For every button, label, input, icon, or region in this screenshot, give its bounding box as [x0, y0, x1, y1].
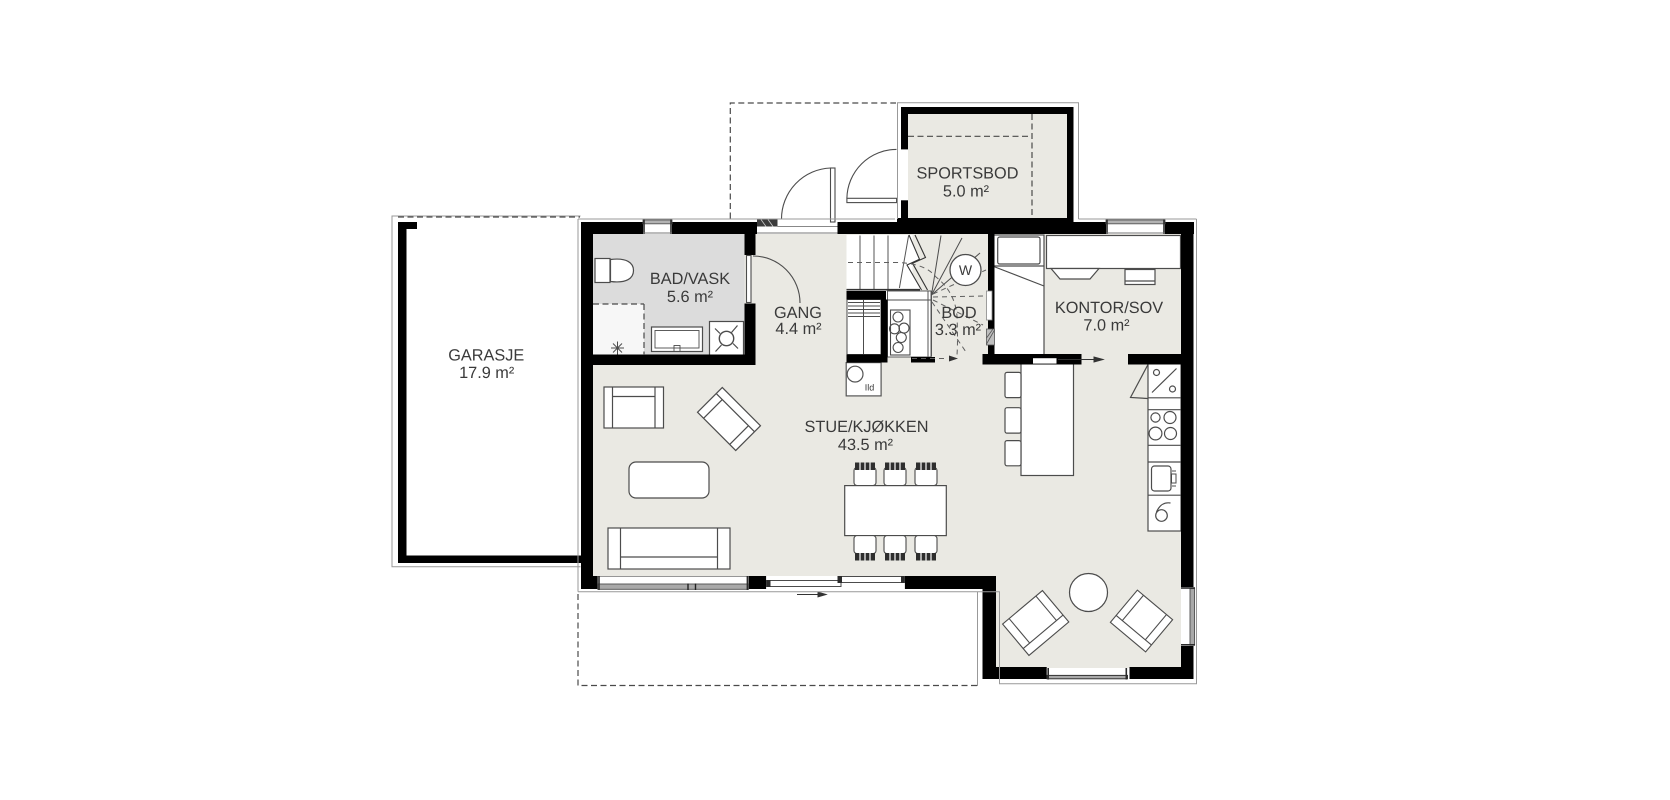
- svg-text:7.0 m²: 7.0 m²: [1083, 316, 1130, 334]
- svg-text:W: W: [959, 262, 973, 278]
- svg-text:5.6 m²: 5.6 m²: [667, 288, 714, 306]
- svg-text:BAD/VASK: BAD/VASK: [650, 270, 730, 288]
- svg-text:17.9 m²: 17.9 m²: [459, 364, 515, 382]
- svg-text:5.0 m²: 5.0 m²: [943, 183, 990, 201]
- svg-text:BOD: BOD: [941, 304, 976, 322]
- svg-text:3.3 m²: 3.3 m²: [935, 321, 982, 339]
- svg-text:SPORTSBOD: SPORTSBOD: [917, 165, 1019, 183]
- svg-text:43.5 m²: 43.5 m²: [838, 436, 894, 454]
- svg-text:4.4 m²: 4.4 m²: [775, 320, 822, 338]
- svg-text:Ild: Ild: [865, 383, 875, 393]
- svg-text:GARASJE: GARASJE: [448, 347, 524, 365]
- svg-text:KONTOR/SOV: KONTOR/SOV: [1055, 299, 1163, 317]
- svg-text:STUE/KJØKKEN: STUE/KJØKKEN: [805, 418, 929, 436]
